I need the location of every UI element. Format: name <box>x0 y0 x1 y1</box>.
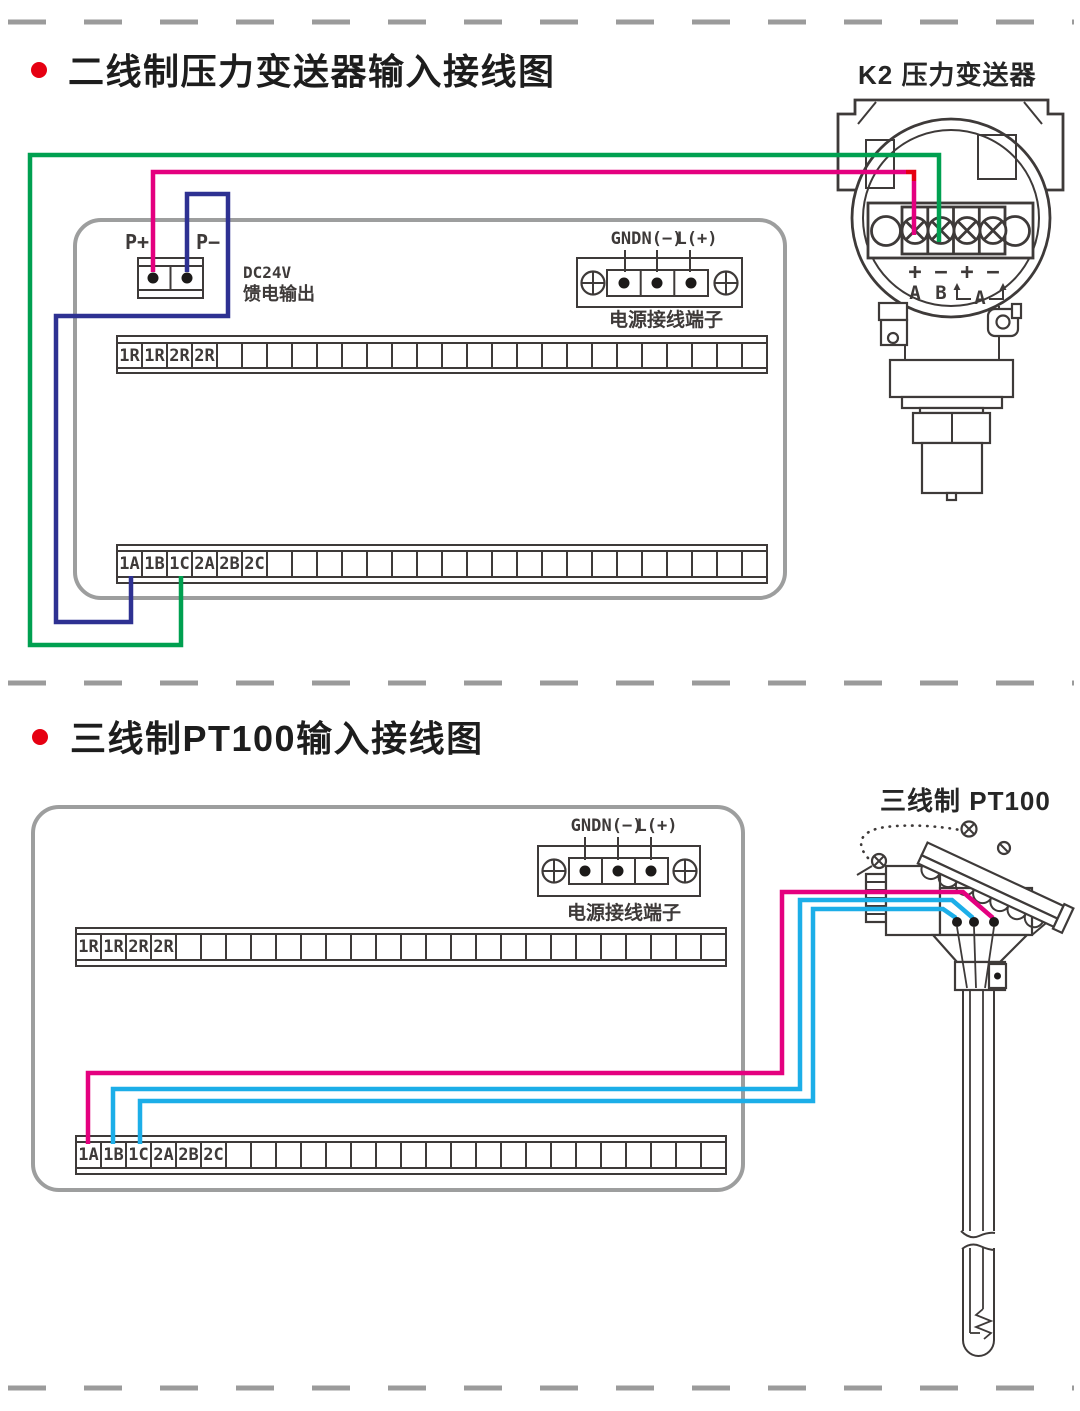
terminal-cell-label: 1C <box>169 554 189 574</box>
terminal-cell-label: 1C <box>128 1145 148 1165</box>
p-plus-terminal-dot <box>148 273 159 284</box>
terminal-cell-label: 2A <box>194 554 214 574</box>
gnd-label: GND <box>611 229 642 249</box>
terminal-cell-label: 2R <box>153 937 174 957</box>
sensor-label: 三线制 PT100 <box>880 786 1051 816</box>
terminal-cell-label: 2C <box>244 554 264 574</box>
section2-pt100-diagram: 三线制PT100输入接线图 三线制 PT100 GND N(−) L(+) 电源… <box>32 718 1073 1356</box>
terminal-cell-label: 1A <box>119 554 139 574</box>
pressure-transmitter: + − + − A B A <box>838 100 1063 500</box>
terminal-cell-label: 1A <box>78 1145 98 1165</box>
terminal-strip-bottom: 1A 1B 1C 2A 2B 2C <box>76 1136 726 1174</box>
terminal-letter: B <box>935 282 946 304</box>
section2-title: 三线制PT100输入接线图 <box>70 718 484 759</box>
p-minus-label: P− <box>196 230 220 254</box>
sensor-terminal-dot <box>952 917 962 927</box>
terminal-cell-label: 2B <box>219 554 239 574</box>
terminal-cell-label: 1R <box>119 346 140 366</box>
terminal-cell-label: 2C <box>203 1145 223 1165</box>
sensor-funnel <box>933 935 1027 962</box>
sensor-terminal-dot <box>989 917 999 927</box>
terminal-strip-top: 1R 1R 2R 2R <box>117 336 767 373</box>
terminal-cell-label: 2A <box>153 1145 173 1165</box>
l-plus-label: L(+) <box>637 816 678 836</box>
sensor-terminal-dot <box>969 917 979 927</box>
terminal-cell-label: 1B <box>103 1145 123 1165</box>
wiring-diagram-page: 二线制压力变送器输入接线图 K2 压力变送器 P+ P− DC24V 馈电输出 … <box>0 0 1080 1411</box>
terminal-cell-label: 2R <box>128 937 149 957</box>
sensor-probe <box>961 990 995 1356</box>
p-minus-terminal-dot <box>182 273 193 284</box>
lid-cap-screw-icon <box>962 822 1011 855</box>
power-terminal-block: GND N(−) L(+) 电源接线端子 <box>577 229 742 331</box>
terminal-bracket-letter: A <box>974 287 986 309</box>
bullet-icon <box>31 62 47 78</box>
power-terminal-caption: 电源接线端子 <box>609 308 723 331</box>
rtd-resistor-icon <box>976 1309 991 1339</box>
section2-wires <box>88 892 999 1144</box>
power-terminal-block: GND N(−) L(+) 电源接线端子 <box>538 816 700 924</box>
recorder-device-box <box>75 220 785 598</box>
terminal-cell-label: 1R <box>144 346 165 366</box>
dc24v-label: DC24V <box>243 263 292 282</box>
terminal-sign: − <box>986 260 999 285</box>
pink-wire <box>88 892 993 1144</box>
cyan-wire-2 <box>140 909 956 1144</box>
bullet-icon <box>32 729 48 745</box>
section1-title: 二线制压力变送器输入接线图 <box>68 51 556 92</box>
feed-output-label: 馈电输出 <box>243 283 315 304</box>
cyan-wire-1 <box>113 900 973 1144</box>
terminal-cell-label: 1B <box>144 554 164 574</box>
terminal-sign: + <box>960 260 973 285</box>
transmitter-label: K2 压力变送器 <box>858 60 1036 90</box>
terminal-cell-label: 2B <box>178 1145 198 1165</box>
gnd-label: GND <box>571 816 602 836</box>
terminal-strip-bottom: 1A 1B 1C 2A 2B 2C <box>117 545 767 583</box>
terminal-cell-label: 2R <box>169 346 190 366</box>
power-terminal-caption: 电源接线端子 <box>567 901 681 924</box>
transmitter-flange <box>890 360 1013 397</box>
terminal-cell-label: 1R <box>78 937 99 957</box>
p-plus-label: P+ <box>125 230 149 254</box>
terminal-strip-top: 1R 1R 2R 2R <box>76 928 726 966</box>
section1-two-wire-transmitter-diagram: 二线制压力变送器输入接线图 K2 压力变送器 P+ P− DC24V 馈电输出 … <box>30 51 1063 645</box>
terminal-letter: A <box>909 282 921 304</box>
lid-screw-icon <box>857 854 886 875</box>
terminal-cell-label: 2R <box>194 346 215 366</box>
terminal-cell-label: 1R <box>103 937 124 957</box>
l-plus-label: L(+) <box>677 229 718 249</box>
